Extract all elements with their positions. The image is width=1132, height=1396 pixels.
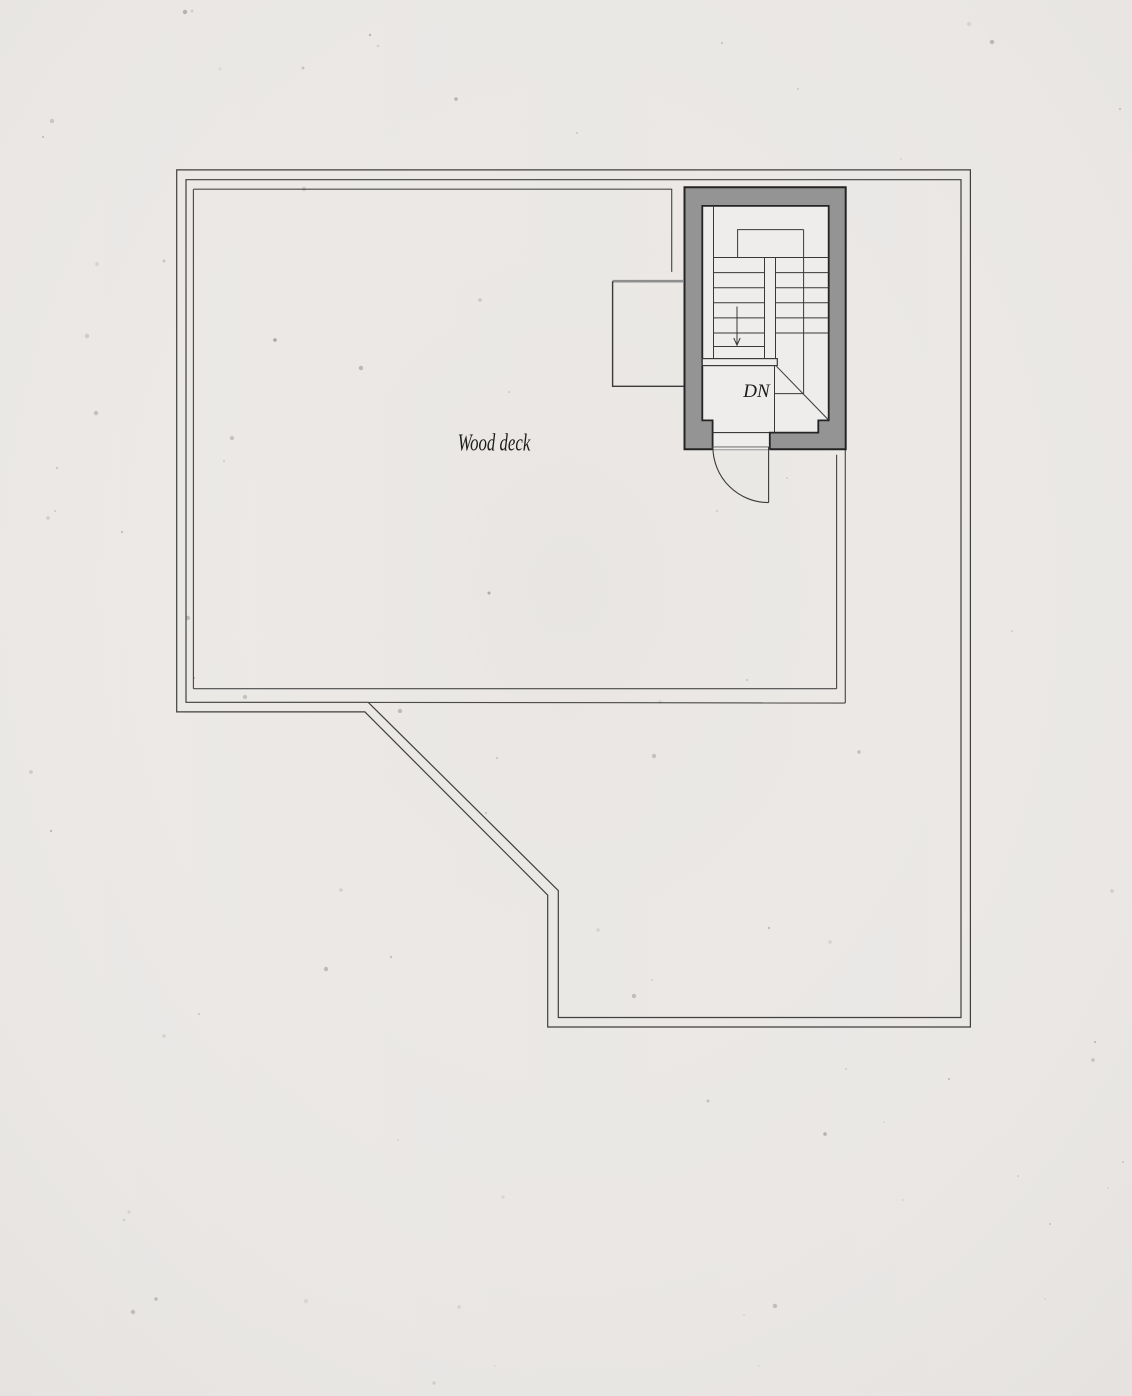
- svg-text:DN: DN: [742, 381, 771, 402]
- svg-text:Wood deck: Wood deck: [458, 431, 531, 456]
